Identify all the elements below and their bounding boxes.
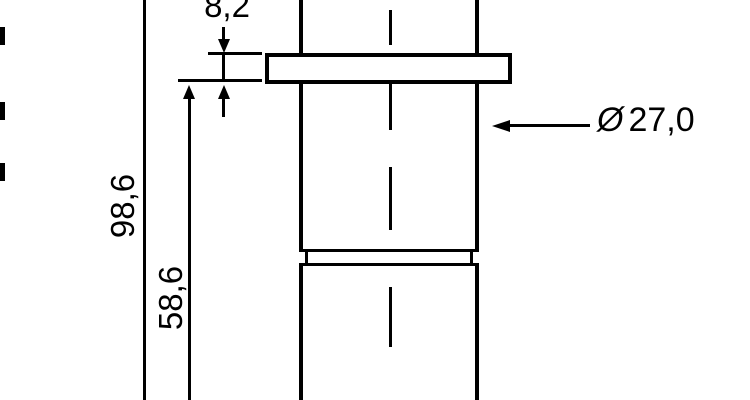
dimension-label-diameter: Ø27,0 — [597, 103, 695, 137]
leader-line — [509, 124, 590, 127]
dimension-arrowhead-up-icon — [218, 85, 230, 99]
groove-bottom-line — [299, 263, 479, 266]
part-lower-edge-right — [475, 266, 479, 400]
part-upper-edge-left — [299, 0, 303, 54]
dimension-arrow-shaft — [222, 98, 225, 117]
dimension-arrowhead-down-icon — [218, 39, 230, 53]
diameter-symbol: Ø — [597, 101, 623, 139]
part-mid-edge-right — [475, 84, 479, 249]
centerline-dash — [389, 10, 392, 45]
centerline-dash — [389, 167, 392, 230]
diameter-value: 27,0 — [628, 101, 694, 139]
flange-outline — [265, 53, 512, 84]
dimension-connector-line — [222, 55, 225, 81]
left-edge-mark — [0, 163, 5, 181]
extension-line-flange-top — [208, 52, 262, 55]
dimension-label-body-length: 58,6 — [156, 258, 186, 338]
dimension-label-flange-thickness: 8,2 — [197, 0, 257, 24]
left-edge-mark — [0, 102, 5, 120]
groove-neck-left — [305, 252, 308, 263]
part-lower-edge-left — [299, 266, 303, 400]
dimension-line-body-length — [188, 97, 191, 400]
centerline-dash — [389, 82, 392, 130]
part-upper-edge-right — [475, 0, 479, 54]
centerline-dash — [389, 287, 392, 347]
groove-top-line — [299, 249, 479, 252]
part-mid-edge-left — [299, 84, 303, 249]
dimension-line-overall-length — [143, 0, 146, 400]
dimension-label-overall-length: 98,6 — [108, 166, 138, 246]
leader-arrowhead-left-icon — [492, 120, 510, 132]
extension-line-flange-bottom — [178, 79, 262, 82]
groove-neck-right — [470, 252, 473, 263]
technical-drawing-canvas: 98,6 58,6 8,2 Ø27,0 — [0, 0, 750, 400]
left-edge-mark — [0, 27, 5, 45]
